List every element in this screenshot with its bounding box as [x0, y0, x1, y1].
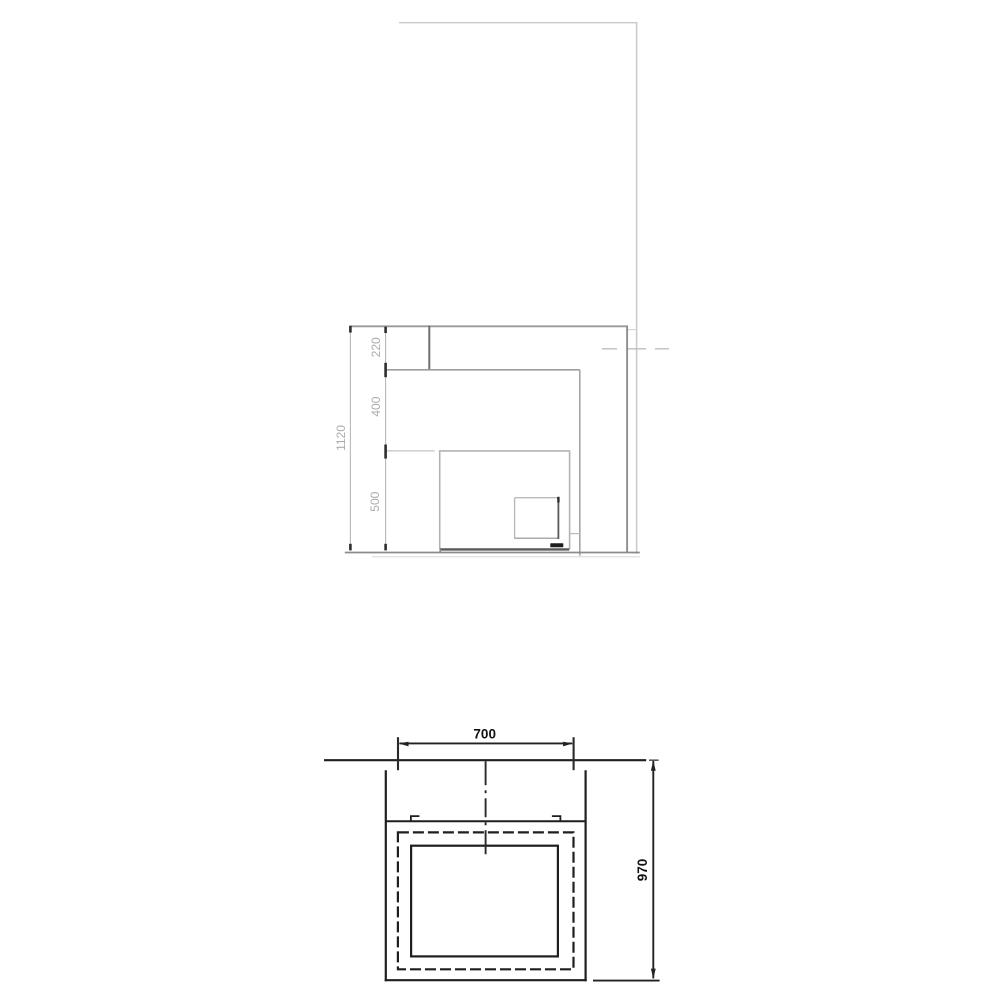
svg-text:970: 970: [635, 859, 650, 882]
svg-text:500: 500: [368, 491, 382, 511]
svg-text:220: 220: [369, 337, 383, 357]
svg-text:400: 400: [369, 396, 383, 416]
svg-text:700: 700: [473, 727, 496, 742]
svg-text:1120: 1120: [334, 425, 348, 451]
